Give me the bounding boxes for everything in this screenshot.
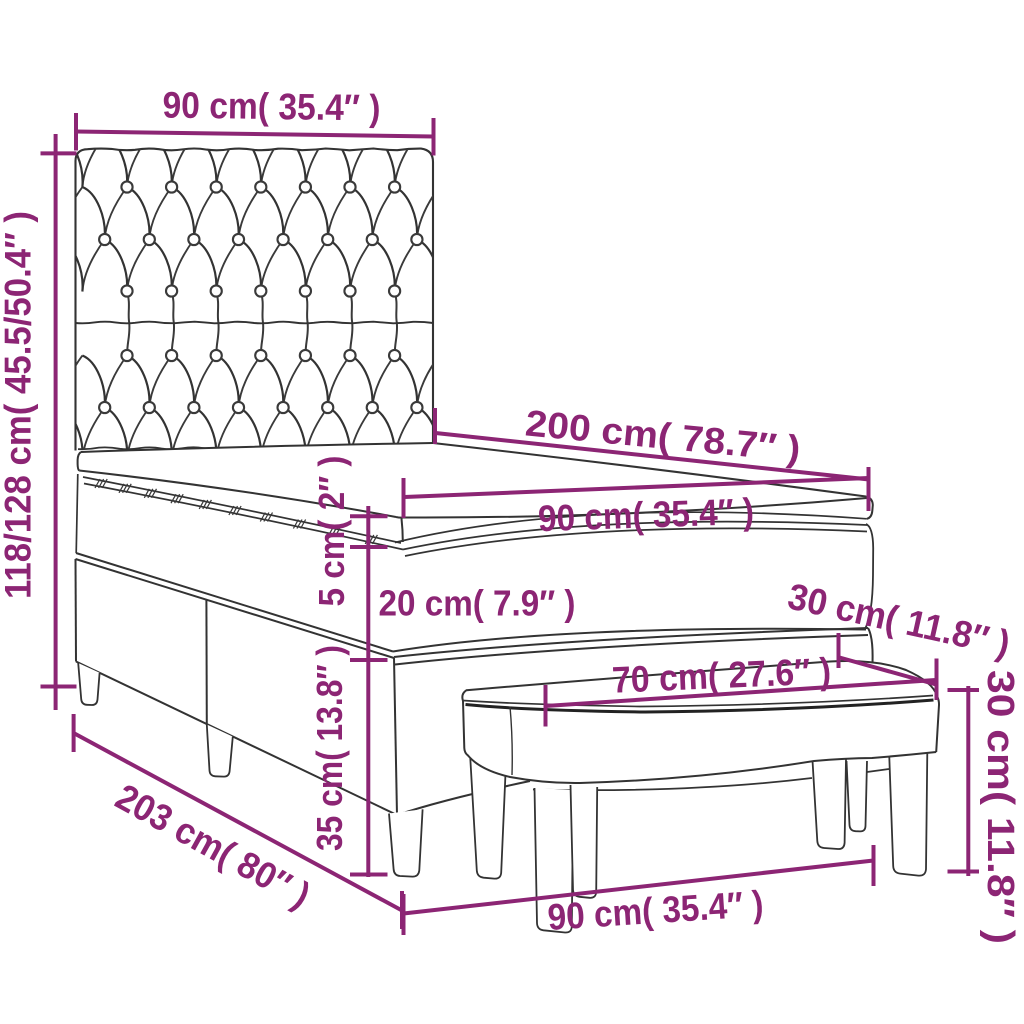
- svg-text:90 cm( 35.4″ ): 90 cm( 35.4″ ): [162, 84, 381, 128]
- svg-text:5 cm( 2″ ): 5 cm( 2″ ): [311, 456, 352, 607]
- svg-text:35 cm( 13.8″ ): 35 cm( 13.8″ ): [309, 645, 350, 851]
- svg-text:118/128 cm( 45.5/50.4″ ): 118/128 cm( 45.5/50.4″ ): [0, 211, 39, 599]
- svg-text:90 cm( 35.4″ ): 90 cm( 35.4″ ): [537, 491, 754, 540]
- svg-text:30 cm( 11.8″ ): 30 cm( 11.8″ ): [979, 670, 1021, 944]
- svg-text:20 cm( 7.9″ ): 20 cm( 7.9″ ): [379, 583, 576, 624]
